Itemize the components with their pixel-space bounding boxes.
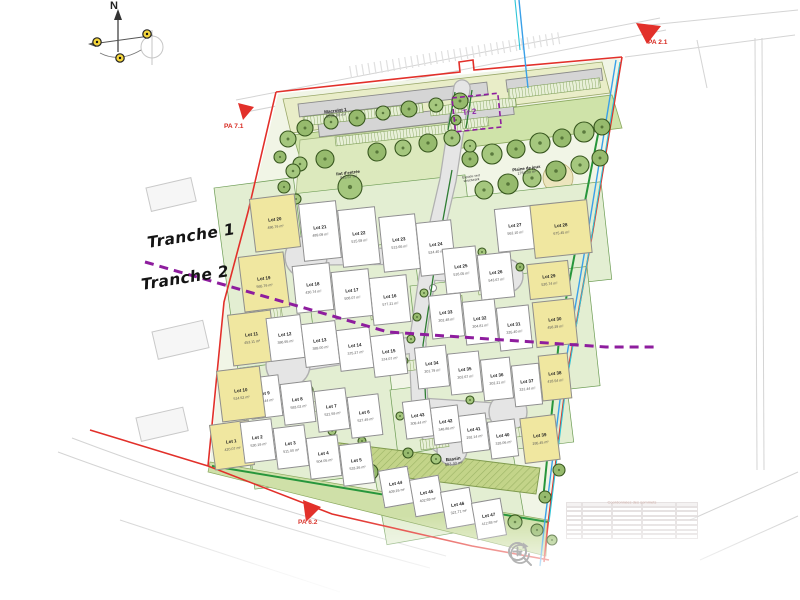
lot-number: Lot 36 [490,373,504,379]
lot-parcel: Lot 31335.40 m² [496,304,533,351]
lot-number: Lot 8 [292,397,303,403]
lot-parcel: Lot 3511.00 m² [273,424,310,470]
lot-parcel: Lot 40318.06 m² [487,418,519,459]
viewer-toolbar [504,538,665,570]
pa-bottom-left-label: PA 6.2 [298,518,317,526]
north-label: N [110,0,118,12]
lot-area: 583.02 m² [290,404,307,410]
lot-number: Lot 18 [306,282,320,288]
coordinates-table: Coordonnées des sommets [566,494,698,539]
lot-area: 402.69 m² [419,496,436,503]
lot-area: 533.26 m² [349,465,366,471]
lot-parcel: Lot 25516.05 m² [442,245,481,294]
lot-parcel: Lot 14375.27 m² [336,326,375,372]
lot-parcel: Lot 22515.59 m² [337,206,381,268]
lot-number: Lot 35 [458,367,472,373]
lot-number: Lot 11 [245,332,258,338]
lot-number: Lot 39 [533,433,547,439]
lot-parcel: Lot 28675.45 m² [529,199,592,259]
lot-number: Lot 30 [548,317,562,323]
lot-area: 504.05 m² [316,458,333,464]
lot-number: Lot 1 [226,439,237,445]
lot-area: 389.00 m² [313,345,330,351]
lot-number: Lot 42 [439,419,453,425]
lot-parcel: Lot 6527.49 m² [347,393,384,439]
lot-parcel: Lot 39295.45 m² [519,414,560,464]
lot-number: Lot 28 [554,223,568,229]
lot-number: Lot 43 [411,413,425,419]
lot-number: Lot 20 [268,217,282,223]
lot-number: Lot 40 [496,433,510,439]
lot-area: 301.79 m² [424,368,441,373]
lot-number: Lot 27 [508,223,522,229]
lot-number: Lot 5 [351,458,362,464]
lot-parcel: Lot 34301.79 m² [414,344,450,389]
lot-parcel: Lot 43309.44 m² [402,398,434,439]
reset-rotation-button[interactable] [633,538,665,570]
lot-parcel: Lot 5533.26 m² [339,441,376,487]
lot-parcel: Lot 29526.74 m² [526,260,572,300]
lot-area: 543.67 m² [488,277,505,282]
lot-number: Lot 47 [481,512,495,519]
lot-number: Lot 12 [278,332,292,338]
lot-area: 412.88 m² [481,519,498,526]
lot-number: Lot 10 [234,388,248,394]
lot-area: 302.67 m² [457,374,474,379]
lot-number: Lot 37 [520,379,534,385]
lot-parcel: Lot 19565.79 m² [238,251,290,312]
lot-parcel: Lot 8583.02 m² [280,380,317,426]
lot-number: Lot 24 [429,242,443,248]
lot-number: Lot 17 [345,288,359,294]
lot-area: 420.07 m² [224,446,241,452]
pa-left-label: PA 7.1 [224,122,243,130]
coordinates-table-title: Coordonnées des sommets [566,494,698,502]
lot-number: Lot 7 [326,404,337,410]
lot-area: 304.81 m² [473,323,490,328]
lot-area: 514.52 m² [233,395,250,401]
lot-number: Lot 2 [252,435,263,441]
lot-number: Lot 34 [425,361,439,367]
lot-area: 375.27 m² [347,350,364,356]
lot-number: Lot 31 [507,322,521,328]
lot-number: Lot 15 [382,349,396,355]
lot-number: Lot 33 [439,310,453,316]
lot-area: 486.79 m² [267,224,284,230]
lot-area: 348.86 m² [438,426,455,432]
lot-number: Lot 41 [467,427,481,433]
site-plan-viewer: Lot 1420.07 m²Lot 2530.19 m²Lot 3511.00 … [0,0,800,600]
zoom-out-button[interactable] [547,538,579,570]
lot-parcel: Lot 32304.81 m² [462,298,499,345]
tranche2-zone-label: Tr 2 [462,107,477,117]
lot-number: Lot 19 [257,276,271,282]
lot-area: 409.16 m² [388,487,405,494]
lot-area: 318.06 m² [495,440,512,446]
lot-area: 526.74 m² [541,281,558,286]
lot-number: Lot 38 [548,371,562,377]
coordinates-table-cell [676,534,698,539]
lot-parcel: Lot 45402.69 m² [409,475,445,518]
pa-top-right-label: PA 2.1 [648,38,667,46]
lot-parcel: Lot 13389.00 m² [300,320,340,368]
lot-number: Lot 29 [542,274,556,280]
lot-area: 516.05 m² [453,271,470,276]
lot-area: 331.44 m² [519,386,536,391]
lot-parcel: Lot 16577.21 m² [369,274,412,326]
lot-area: 511.00 m² [283,448,299,454]
lot-number: Lot 25 [454,264,468,270]
zoom-in-button[interactable] [504,538,536,570]
lot-parcel: Lot 21489.09 m² [298,200,342,262]
lot-number: Lot 13 [313,338,327,344]
lot-number: Lot 46 [450,501,464,508]
lot-area: 374.07 m² [381,356,398,362]
lot-number: Lot 14 [348,343,362,349]
lot-parcel: Lot 44409.16 m² [378,466,414,509]
lot-area: 321.71 m² [450,508,467,515]
lot-area: 295.45 m² [532,440,549,446]
lot-area: 527.49 m² [357,417,374,423]
lot-number: Lot 21 [313,225,327,231]
lot-parcel: Lot 26543.67 m² [477,251,516,300]
lot-parcel: Lot 30458.29 m² [532,298,579,348]
lot-number: Lot 45 [419,489,433,496]
lot-number: Lot 26 [489,270,503,276]
lot-parcel: Lot 17508.07 m² [331,268,374,320]
lot-parcel: Lot 46321.71 m² [440,487,476,530]
lot-area: 515.59 m² [351,238,368,243]
lot-parcel: Lot 4504.05 m² [306,434,343,480]
search-button[interactable] [590,538,622,570]
lot-number: Lot 6 [359,410,370,416]
lot-area: 292.14 m² [466,434,483,440]
lot-number: Lot 16 [383,294,397,300]
lot-area: 386.95 m² [278,339,295,345]
lot-parcel: Lot 36302.21 m² [480,357,514,402]
lot-parcel: Lot 2530.19 m² [240,418,277,464]
lot-parcel: Lot 20486.79 m² [249,193,301,252]
lot-number: Lot 44 [388,480,402,487]
lot-parcel: Lot 10514.52 m² [216,366,266,423]
lot-area: 565.79 m² [256,283,273,289]
lot-parcel: Lot 42348.86 m² [430,404,462,445]
lot-area: 418.54 m² [547,378,564,383]
lot-number: Lot 22 [352,231,366,237]
lot-area: 453.11 m² [244,339,260,345]
lot-area: 513.66 m² [392,244,409,249]
lot-parcel: Lot 18430.74 m² [292,262,335,314]
lot-area: 530.19 m² [250,442,267,448]
lot-area: 562.10 m² [507,230,524,235]
coordinates-table-grid [566,502,698,539]
lot-area: 458.29 m² [547,324,564,329]
magnifier-plus-icon [504,538,536,570]
lot-area: 675.45 m² [553,230,570,235]
lot-parcel: Lot 47412.88 m² [471,498,507,541]
lot-area: 521.59 m² [324,411,341,417]
lot-area: 508.07 m² [344,295,361,300]
lot-parcel: Lot 33302.48 m² [428,292,465,339]
lot-parcel: Lot 12386.95 m² [265,314,305,362]
lot-area: 489.09 m² [312,232,329,237]
lot-area: 302.21 m² [489,380,506,385]
lot-parcel: Lot 38418.54 m² [538,353,573,402]
lot-parcel: Lot 41292.14 m² [458,412,490,453]
lot-number: Lot 32 [473,316,487,322]
lot-number: Lot 23 [392,237,406,243]
lot-parcel: Lot 15374.07 m² [370,332,409,378]
lot-area: 309.44 m² [410,420,427,426]
lot-number: Lot 3 [285,441,296,447]
lot-parcel: Lot 7521.59 m² [314,387,351,433]
lot-area: 302.48 m² [439,317,456,322]
lot-area: 430.74 m² [305,289,322,294]
lot-area: 335.40 m² [507,329,524,334]
lot-parcel: Lot 35302.67 m² [447,350,483,395]
lot-area: 577.21 m² [382,301,399,306]
lot-number: Lot 4 [318,451,329,457]
